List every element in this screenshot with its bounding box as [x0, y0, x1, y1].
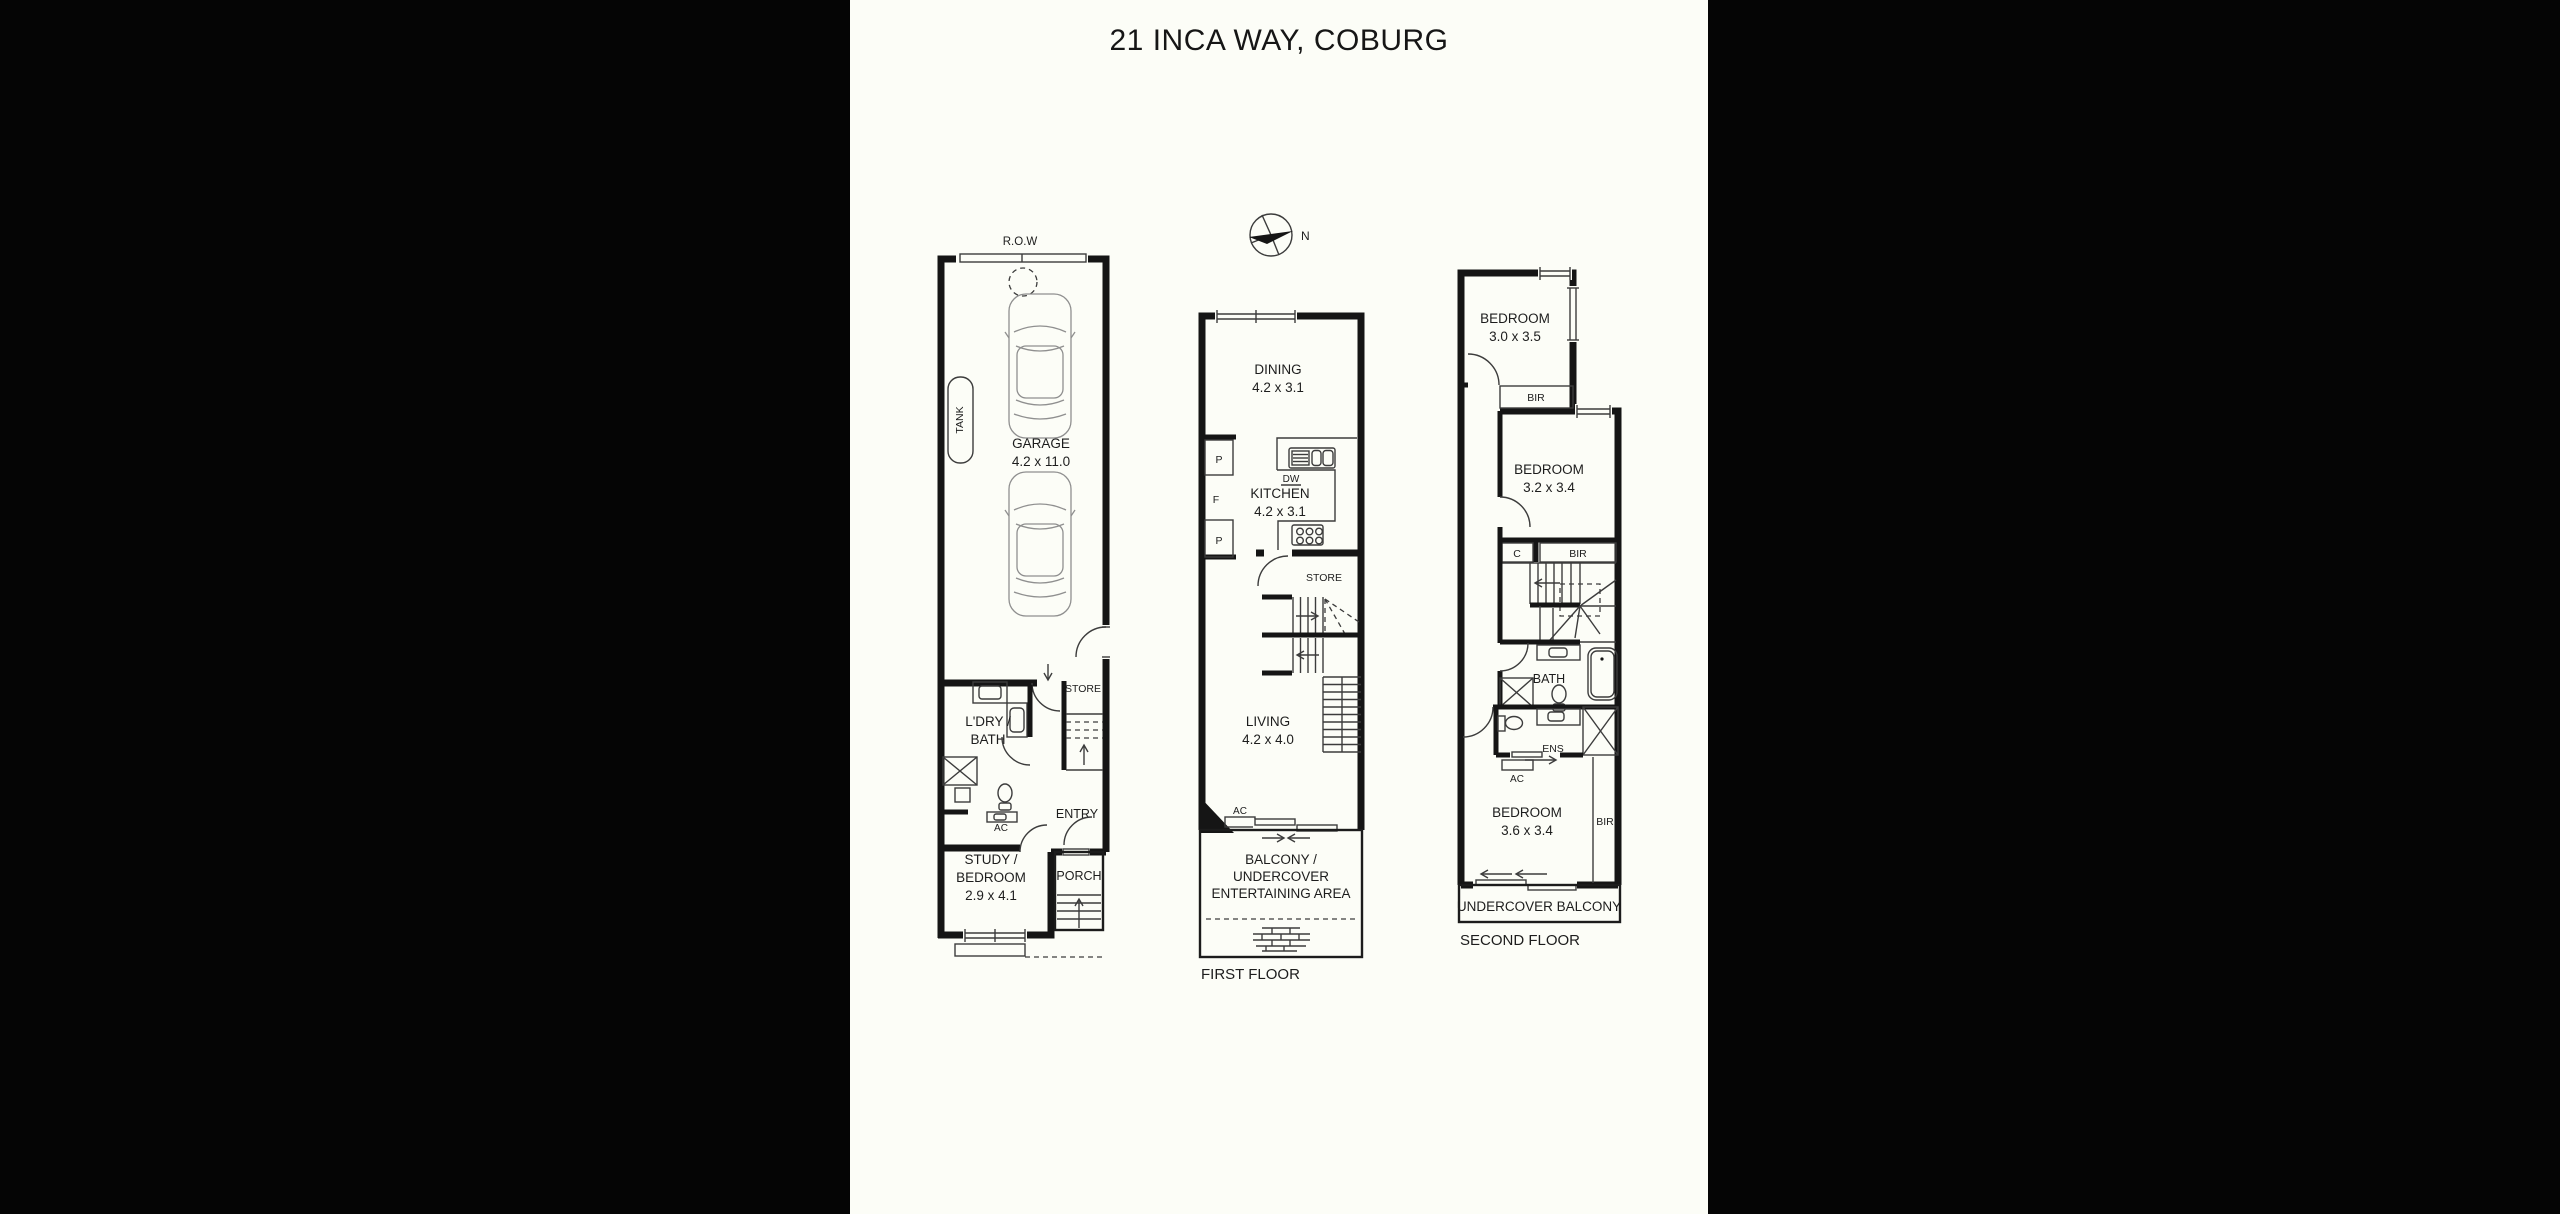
dining-label: DINING	[1254, 362, 1301, 377]
dw-label: DW	[1283, 474, 1300, 485]
second-ac-label: AC	[1510, 774, 1524, 785]
door-arc	[1020, 825, 1047, 852]
balcony-label-3: ENTERTAINING AREA	[1211, 886, 1350, 901]
first-ac-label: AC	[1233, 806, 1247, 817]
car-icon	[1005, 294, 1075, 438]
bathroom: BATH	[1500, 540, 1617, 711]
brick-hatch	[1253, 928, 1310, 951]
living-label: LIVING	[1246, 714, 1290, 729]
second-stairs	[1500, 563, 1616, 642]
floorplan-page: 21 INCA WAY, COBURG N R.O.	[0, 0, 2560, 1214]
garage-label: GARAGE	[1012, 436, 1070, 451]
first-store-label: STORE	[1306, 572, 1342, 584]
garage-dims: 4.2 x 11.0	[1012, 454, 1070, 469]
first-floor-caption: FIRST FLOOR	[1201, 966, 1300, 983]
porch: PORCH	[1055, 852, 1103, 930]
dining-dims: 4.2 x 3.1	[1252, 380, 1304, 395]
door-arc	[1500, 643, 1528, 671]
kitchen-label: KITCHEN	[1250, 486, 1309, 501]
second-floor-caption: SECOND FLOOR	[1460, 932, 1580, 949]
water-tank: TANK	[948, 377, 973, 463]
second-outer-wall	[1461, 273, 1573, 885]
bathtub	[1588, 648, 1617, 700]
compass-north-label: N	[1301, 229, 1310, 243]
ground-store-label: STORE	[1065, 683, 1101, 695]
laundry-fixtures	[943, 682, 1027, 822]
porch-label: PORCH	[1056, 869, 1101, 883]
dashed-column	[1009, 268, 1037, 296]
bir2-label: BIR	[1569, 548, 1587, 560]
toilet	[1552, 685, 1566, 703]
bedroom2-dims: 3.2 x 3.4	[1523, 480, 1575, 495]
balcony-label-1: BALCONY /	[1245, 852, 1317, 867]
sliding-door-panel	[1512, 752, 1542, 757]
pantry1-label: P	[1215, 454, 1222, 466]
cooktop	[1292, 525, 1323, 545]
bedroom1-dims: 3.0 x 3.5	[1489, 329, 1541, 344]
ac-unit	[1225, 817, 1255, 827]
door-arc	[1463, 707, 1493, 737]
study-dims: 2.9 x 4.1	[965, 888, 1017, 903]
door-arc	[1002, 737, 1030, 765]
bedroom3-label: BEDROOM	[1492, 805, 1562, 820]
ground-ac-label: AC	[994, 823, 1008, 834]
bedroom2-label: BEDROOM	[1514, 462, 1584, 477]
laundry-label-1: L'DRY /	[965, 714, 1011, 729]
ac-unit	[1502, 760, 1533, 770]
ground-stairs	[1066, 714, 1103, 770]
second-floor-plan: BEDROOM 3.0 x 3.5 BIR BEDROOM 3.2 x 3.4 …	[1457, 266, 1621, 949]
toilet	[1506, 717, 1523, 730]
bedroom3-dims: 3.6 x 3.4	[1501, 823, 1553, 838]
first-floor-plan: DINING 4.2 x 3.1 P F P	[1199, 309, 1362, 983]
entry-label: ENTRY	[1056, 807, 1099, 821]
ground-floor-plan: R.O.W TANK GARAGE 4.2 x 11.0	[938, 236, 1112, 957]
door-arc	[1064, 817, 1092, 845]
second-balcony-label: UNDERCOVER BALCONY	[1457, 899, 1621, 914]
floorplan-drawing: N R.O.W TANK GARAGE 4.2 x 11.0	[0, 0, 2560, 1214]
bir3-label: BIR	[1596, 816, 1614, 828]
bath-label: BATH	[1533, 672, 1565, 686]
compass-icon: N	[1249, 214, 1310, 256]
kitchen-dims: 4.2 x 3.1	[1254, 504, 1306, 519]
ground-outer-wall	[941, 259, 1106, 938]
fridge-label: F	[1213, 494, 1219, 506]
vanity	[1537, 645, 1580, 660]
bir1-label: BIR	[1527, 392, 1545, 404]
study-label-1: STUDY /	[964, 852, 1017, 867]
study-label-2: BEDROOM	[956, 870, 1026, 885]
car-icon	[1005, 472, 1075, 616]
window-sill	[955, 944, 1025, 956]
balcony-label-2: UNDERCOVER	[1233, 869, 1329, 884]
living-dims: 4.2 x 4.0	[1242, 732, 1294, 747]
tank-label: TANK	[954, 406, 966, 433]
closet-label: C	[1513, 548, 1521, 560]
bedroom1-label: BEDROOM	[1480, 311, 1550, 326]
door-arc	[1032, 683, 1060, 711]
first-balcony: BALCONY / UNDERCOVER ENTERTAINING AREA	[1200, 830, 1362, 957]
toilet	[998, 784, 1012, 802]
door-arc	[1500, 497, 1530, 527]
laundry-label-2: BATH	[970, 732, 1005, 747]
door-arc	[1468, 354, 1499, 385]
ensuite: ENS	[1463, 707, 1618, 764]
door-arc	[1258, 556, 1288, 586]
pantry2-label: P	[1215, 535, 1222, 547]
row-label: R.O.W	[1003, 236, 1038, 248]
